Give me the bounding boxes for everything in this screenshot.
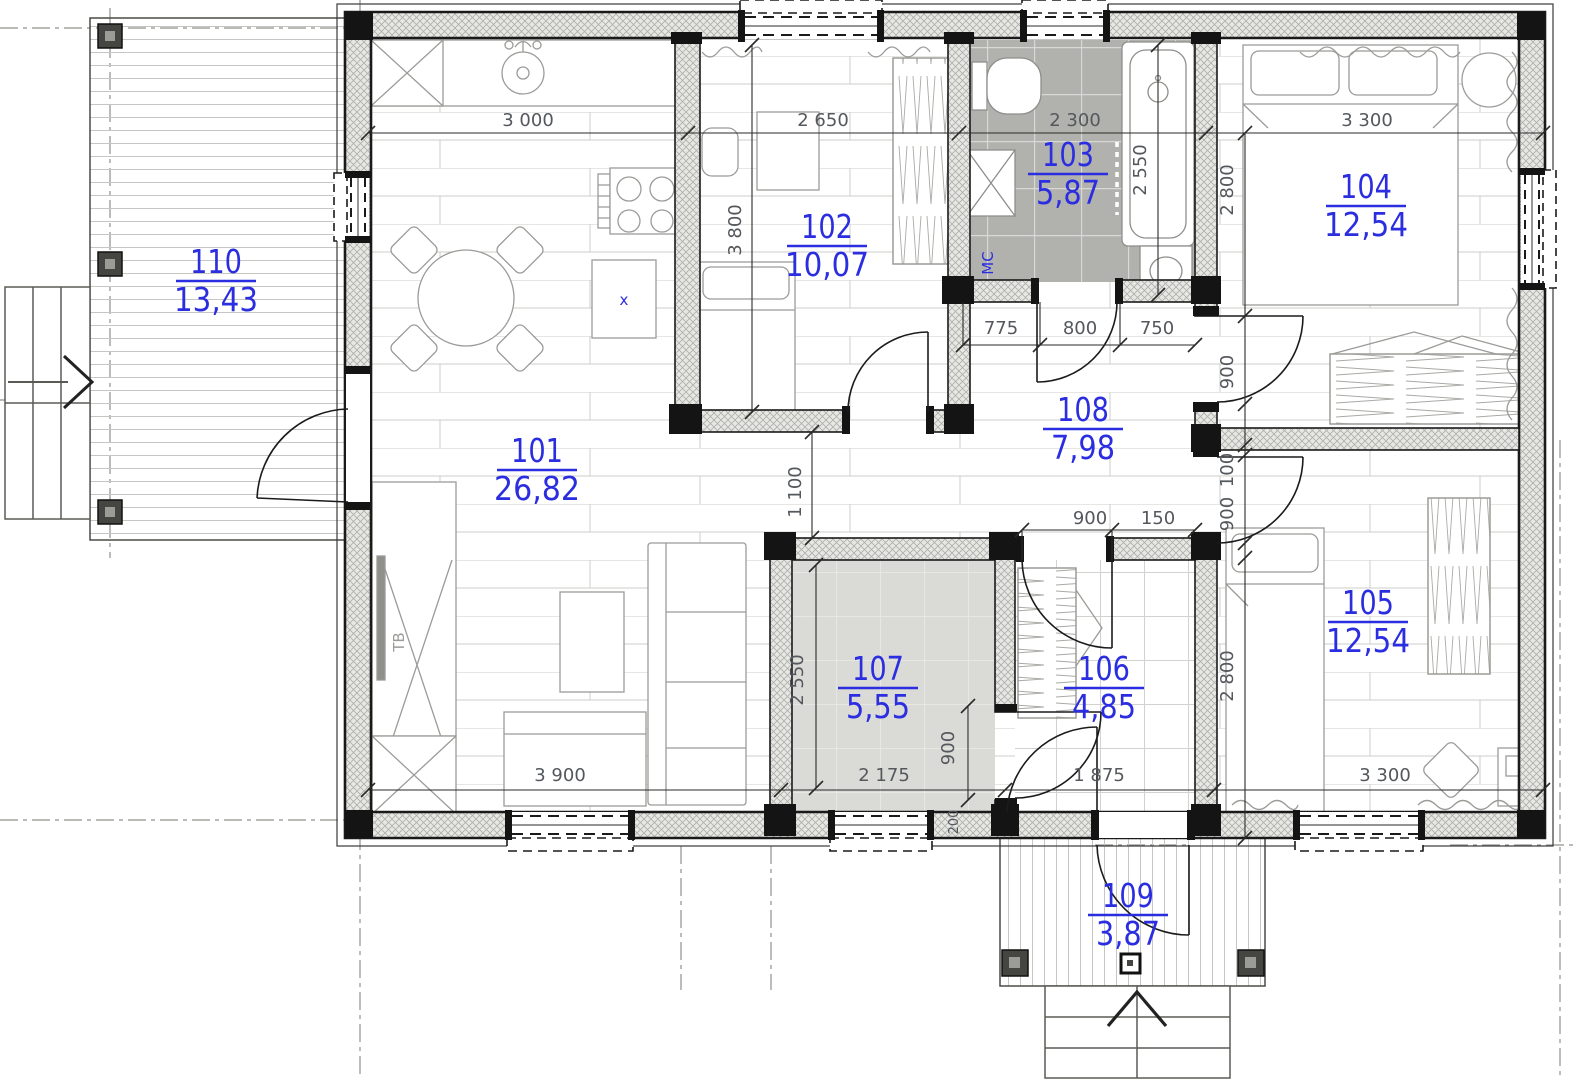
window-bottom-101b xyxy=(828,810,934,851)
room-106-number: 106 xyxy=(1078,649,1130,688)
window-right-104 xyxy=(1519,168,1556,290)
tv-label: ТВ xyxy=(390,632,408,652)
dim-2800-104: 2 800 xyxy=(1217,164,1238,216)
dim-3300-bottom: 3 300 xyxy=(1359,765,1411,786)
room-106-area: 4,85 xyxy=(1072,687,1136,726)
dim-150: 150 xyxy=(1141,508,1175,529)
dining-table-icon xyxy=(418,250,514,346)
dim-2300: 2 300 xyxy=(1049,110,1101,131)
dim-2550-107: 2 550 xyxy=(787,654,808,706)
dim-200: 200 xyxy=(947,810,962,835)
tv-cabinet xyxy=(372,736,456,814)
dim-3300-top: 3 300 xyxy=(1341,110,1393,131)
window-left-101 xyxy=(334,171,371,243)
dim-2175: 2 175 xyxy=(858,765,910,786)
room-107-area: 5,55 xyxy=(846,687,910,726)
room-104-number: 104 xyxy=(1340,167,1392,206)
dim-775: 775 xyxy=(984,318,1018,339)
dim-750: 750 xyxy=(1140,318,1174,339)
dim-1875: 1 875 xyxy=(1073,765,1125,786)
dim-900-107: 900 xyxy=(938,731,959,765)
dim-900-104: 900 xyxy=(1217,355,1238,389)
wardrobe-105 xyxy=(1428,498,1490,674)
bedside-table-104 xyxy=(1462,53,1516,107)
dim-3000: 3 000 xyxy=(502,110,554,131)
room-109-number: 109 xyxy=(1102,876,1154,915)
room-102-number: 102 xyxy=(801,207,853,246)
bed-102 xyxy=(697,262,795,412)
tv-icon xyxy=(377,556,385,680)
kitchen-sink-icon xyxy=(502,41,544,94)
room-101-number: 101 xyxy=(511,431,563,470)
window-top-103 xyxy=(1020,0,1110,42)
kitchen-cross-mark: x xyxy=(620,291,629,309)
dim-100-105: 100 xyxy=(1217,453,1238,487)
room-101-area: 26,82 xyxy=(494,469,580,508)
ottoman xyxy=(504,712,646,806)
washing-machine-label: МС xyxy=(979,251,997,274)
dim-900-105: 900 xyxy=(1217,497,1238,531)
window-bottom-105 xyxy=(1293,810,1425,851)
floor-plan-canvas: 3 000 2 650 2 300 3 300 3 800 2 550 2 80… xyxy=(0,0,1577,1080)
terrace-stairs xyxy=(5,287,92,519)
coffee-table xyxy=(560,592,624,692)
dim-2650: 2 650 xyxy=(797,110,849,131)
window-top-102 xyxy=(738,0,884,42)
dim-3800: 3 800 xyxy=(725,204,746,256)
fridge-icon xyxy=(371,40,443,106)
bed-105 xyxy=(1226,528,1324,816)
room-105-area: 12,54 xyxy=(1326,621,1410,660)
room-110-area: 13,43 xyxy=(174,280,258,319)
window-bottom-101a xyxy=(505,810,635,851)
room-102-area: 10,07 xyxy=(785,245,869,284)
room-103-area: 5,87 xyxy=(1036,173,1100,212)
room-105-number: 105 xyxy=(1342,583,1394,622)
toilet-icon xyxy=(972,58,1041,114)
room-103-number: 103 xyxy=(1042,135,1094,174)
dim-1100: 1 100 xyxy=(785,466,806,518)
room-104-area: 12,54 xyxy=(1324,205,1408,244)
room-110-number: 110 xyxy=(190,242,242,281)
room-109-area: 3,87 xyxy=(1096,914,1160,953)
room-108-number: 108 xyxy=(1057,390,1109,429)
room-108-area: 7,98 xyxy=(1051,428,1115,467)
cooktop-icon xyxy=(598,168,680,234)
dim-800: 800 xyxy=(1063,318,1097,339)
room-107-number: 107 xyxy=(852,649,904,688)
washing-machine-icon xyxy=(967,150,1015,216)
chair-102 xyxy=(702,128,738,176)
dim-2550-bath: 2 550 xyxy=(1130,144,1151,196)
dim-900-106: 900 xyxy=(1073,508,1107,529)
dim-3900: 3 900 xyxy=(534,765,586,786)
porch-steps xyxy=(1045,986,1230,1078)
sofa xyxy=(648,543,746,805)
dim-2800-105: 2 800 xyxy=(1217,650,1238,702)
wardrobe-102 xyxy=(893,58,949,264)
